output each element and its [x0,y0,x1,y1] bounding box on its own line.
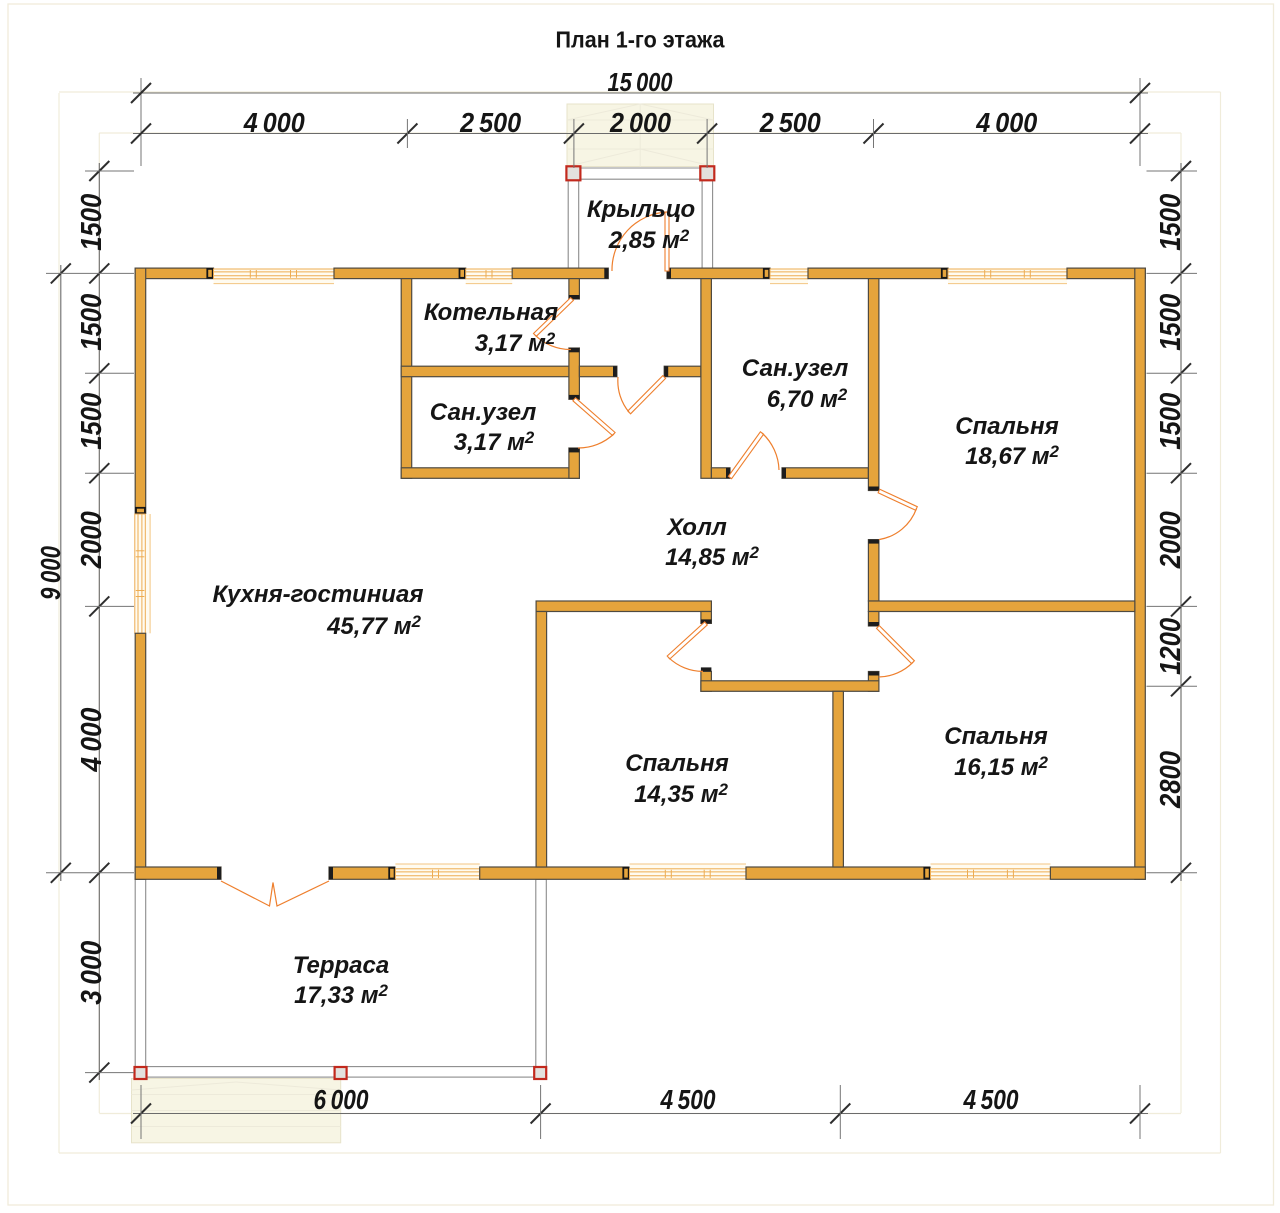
svg-text:Крыльцо: Крыльцо [587,196,695,223]
svg-text:2 500: 2 500 [759,107,821,138]
svg-text:17,33 м2: 17,33 м2 [294,981,388,1009]
svg-text:1200: 1200 [1155,618,1187,675]
svg-text:4 500: 4 500 [963,1084,1019,1115]
svg-text:Сан.узел: Сан.узел [742,355,849,382]
svg-text:3,17 м2: 3,17 м2 [454,428,535,456]
svg-text:Кухня-гостиниая: Кухня-гостиниая [213,581,424,608]
svg-text:Спальня: Спальня [955,413,1058,440]
svg-text:18,67 м2: 18,67 м2 [965,442,1059,470]
svg-text:План 1-го этажа: План 1-го этажа [556,27,725,53]
svg-text:3 000: 3 000 [76,941,108,1005]
svg-text:3,17 м2: 3,17 м2 [475,329,556,357]
svg-text:Котельная: Котельная [424,299,558,326]
svg-text:1500: 1500 [1155,393,1187,450]
svg-text:15 000: 15 000 [608,67,673,97]
svg-text:2000: 2000 [76,511,108,569]
svg-text:Спальня: Спальня [625,750,728,777]
svg-text:4 000: 4 000 [975,107,1037,138]
svg-text:2,85 м2: 2,85 м2 [608,226,690,254]
svg-text:4 500: 4 500 [660,1084,716,1115]
svg-text:Спальня: Спальня [944,723,1047,750]
svg-text:2 000: 2 000 [609,107,671,138]
svg-text:1500: 1500 [76,294,108,351]
svg-text:1500: 1500 [1155,194,1187,251]
svg-text:4 000: 4 000 [243,107,305,138]
svg-text:1500: 1500 [76,393,108,450]
svg-text:14,35 м2: 14,35 м2 [634,780,728,808]
svg-text:Холл: Холл [665,514,727,541]
svg-text:1500: 1500 [1155,294,1187,351]
svg-text:1500: 1500 [76,194,108,251]
svg-text:45,77 м2: 45,77 м2 [326,612,421,640]
svg-text:2000: 2000 [1155,511,1187,569]
svg-text:4 000: 4 000 [76,708,108,773]
svg-text:9 000: 9 000 [35,546,66,600]
svg-text:6,70 м2: 6,70 м2 [767,385,848,413]
svg-text:16,15 м2: 16,15 м2 [954,753,1048,781]
svg-text:2 500: 2 500 [459,107,521,138]
svg-text:2800: 2800 [1155,751,1187,809]
svg-text:Сан.узел: Сан.узел [430,399,537,426]
svg-text:Терраса: Терраса [293,952,389,979]
svg-text:14,85 м2: 14,85 м2 [665,543,759,571]
svg-text:6 000: 6 000 [314,1084,369,1115]
